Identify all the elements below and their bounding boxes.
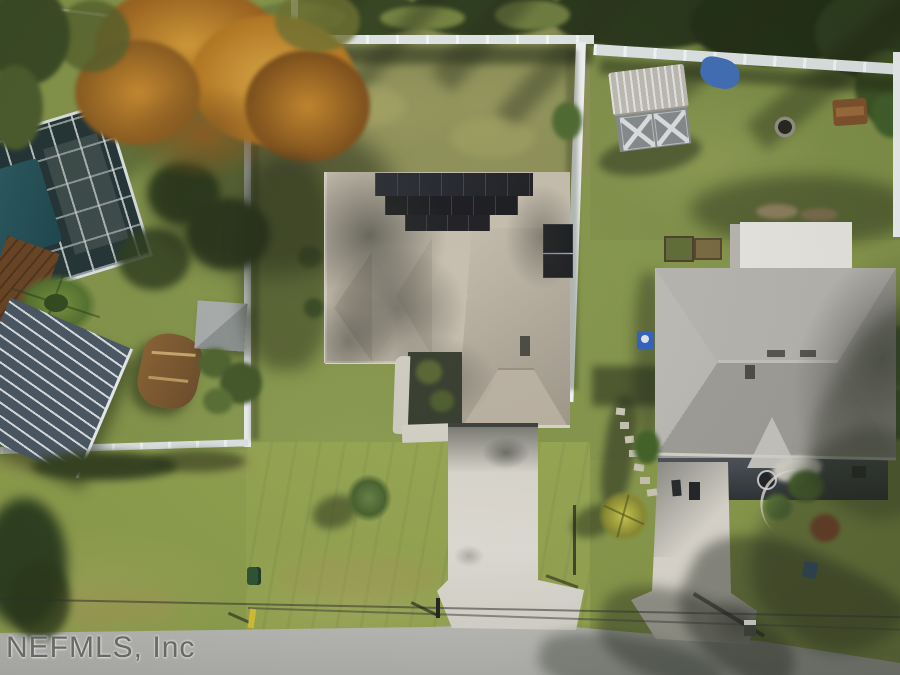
- storage-shed: [608, 64, 694, 157]
- picnic-table: [832, 98, 868, 126]
- hedge-shadow: [150, 450, 245, 472]
- equipment: [671, 480, 681, 497]
- mailbox: [744, 620, 756, 636]
- bush: [203, 388, 233, 414]
- blue-sign: [637, 331, 654, 349]
- autumn-tree: [40, 0, 370, 200]
- garage-wall-line: [448, 423, 538, 427]
- driveway-stain: [454, 545, 484, 567]
- boat-streak: [152, 351, 196, 357]
- golden-palm: [598, 490, 650, 542]
- entry-walkway-pad: [402, 423, 455, 443]
- black-post: [436, 598, 440, 618]
- stepping-stone: [647, 488, 658, 496]
- courtyard-shrub: [430, 390, 454, 412]
- picnic-table-top: [836, 106, 865, 117]
- shed-door-x: [653, 110, 689, 147]
- entry-courtyard: [408, 352, 462, 430]
- fire-pit: [773, 115, 797, 139]
- survey-stake: [573, 505, 576, 575]
- house-shadow: [240, 158, 332, 370]
- sign-glyph: [641, 335, 649, 343]
- shed-door-x: [620, 114, 656, 151]
- mailbox-top: [744, 620, 756, 625]
- boat-streak: [148, 376, 188, 383]
- aerial-photo: NEFMLS, Inc: [0, 0, 900, 675]
- debris: [756, 204, 798, 219]
- stepping-stone: [625, 436, 635, 444]
- watermark: NEFMLS, Inc: [6, 631, 195, 665]
- sunlit-grass-patch: [450, 118, 535, 158]
- green-mailbox: [247, 567, 261, 585]
- equipment: [689, 482, 700, 500]
- palm-center: [44, 294, 68, 312]
- stepping-stone: [640, 477, 650, 484]
- roof-vent: [767, 350, 785, 357]
- tree-shadow: [505, 184, 580, 289]
- small-gray-shed: [194, 300, 247, 351]
- entry-walkway: [393, 356, 411, 434]
- stepping-stone: [620, 422, 629, 429]
- bush: [552, 102, 582, 140]
- fence-right-edge: [893, 52, 900, 237]
- lawn-brown-patch: [280, 555, 440, 599]
- stepping-stone: [634, 463, 645, 471]
- driveway-stain: [482, 437, 530, 469]
- small-front-tree: [346, 474, 392, 522]
- bush: [634, 430, 660, 464]
- autumn-foliage-dark: [125, 85, 280, 180]
- courtyard-shrub: [416, 360, 442, 384]
- roof-vent: [745, 365, 755, 379]
- stepping-stone: [616, 408, 626, 416]
- shed-front: [616, 108, 692, 153]
